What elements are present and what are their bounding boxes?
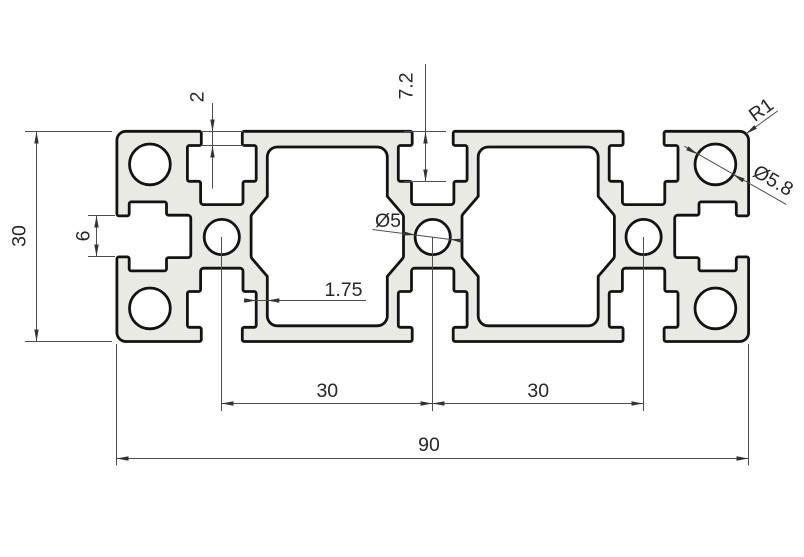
svg-text:30: 30 bbox=[9, 225, 31, 247]
svg-text:1.75: 1.75 bbox=[325, 279, 363, 301]
svg-text:2: 2 bbox=[187, 92, 209, 103]
svg-text:7.2: 7.2 bbox=[396, 72, 418, 99]
svg-text:6: 6 bbox=[73, 231, 95, 242]
svg-text:30: 30 bbox=[527, 380, 549, 402]
svg-text:Ø5: Ø5 bbox=[375, 210, 401, 232]
svg-text:30: 30 bbox=[316, 380, 338, 402]
svg-text:90: 90 bbox=[418, 434, 440, 456]
